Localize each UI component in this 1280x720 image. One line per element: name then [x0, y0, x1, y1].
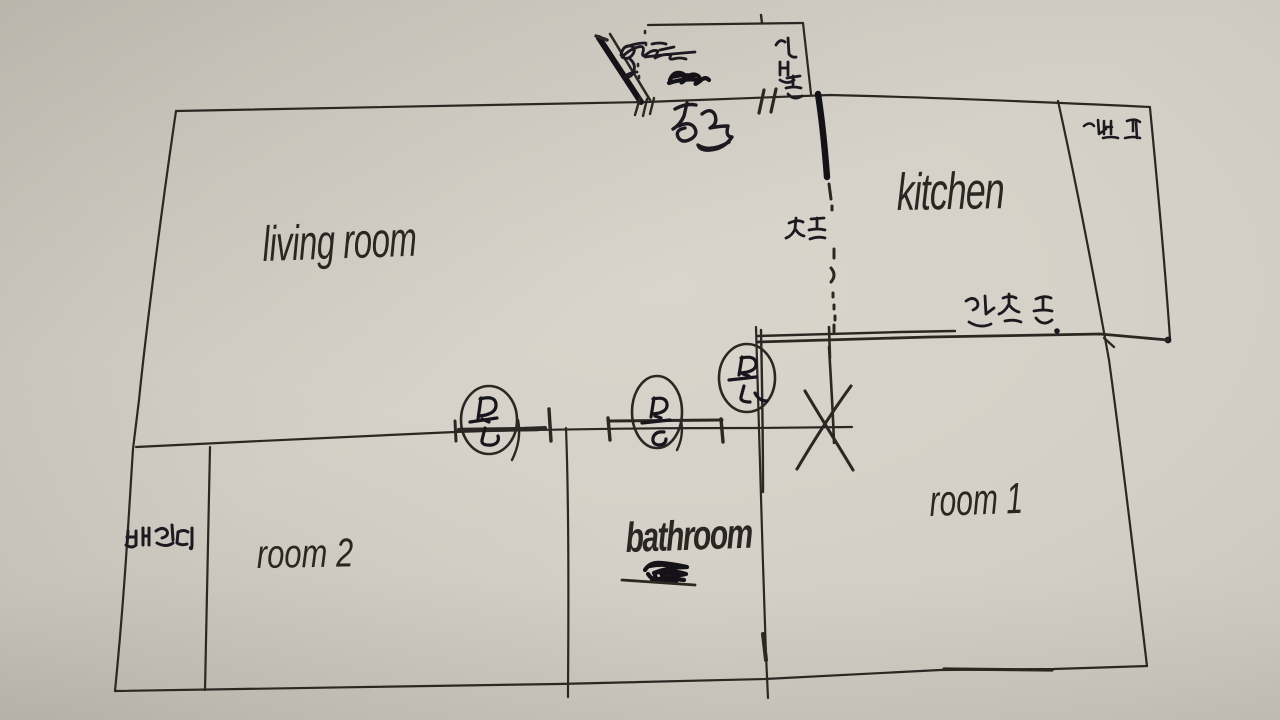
svg-text:room 1: room 1	[929, 473, 1024, 525]
svg-text:kitchen: kitchen	[896, 160, 1004, 221]
svg-text:room 2: room 2	[256, 529, 353, 577]
svg-text:living room: living room	[261, 211, 417, 272]
svg-text:bathroom: bathroom	[625, 510, 753, 562]
